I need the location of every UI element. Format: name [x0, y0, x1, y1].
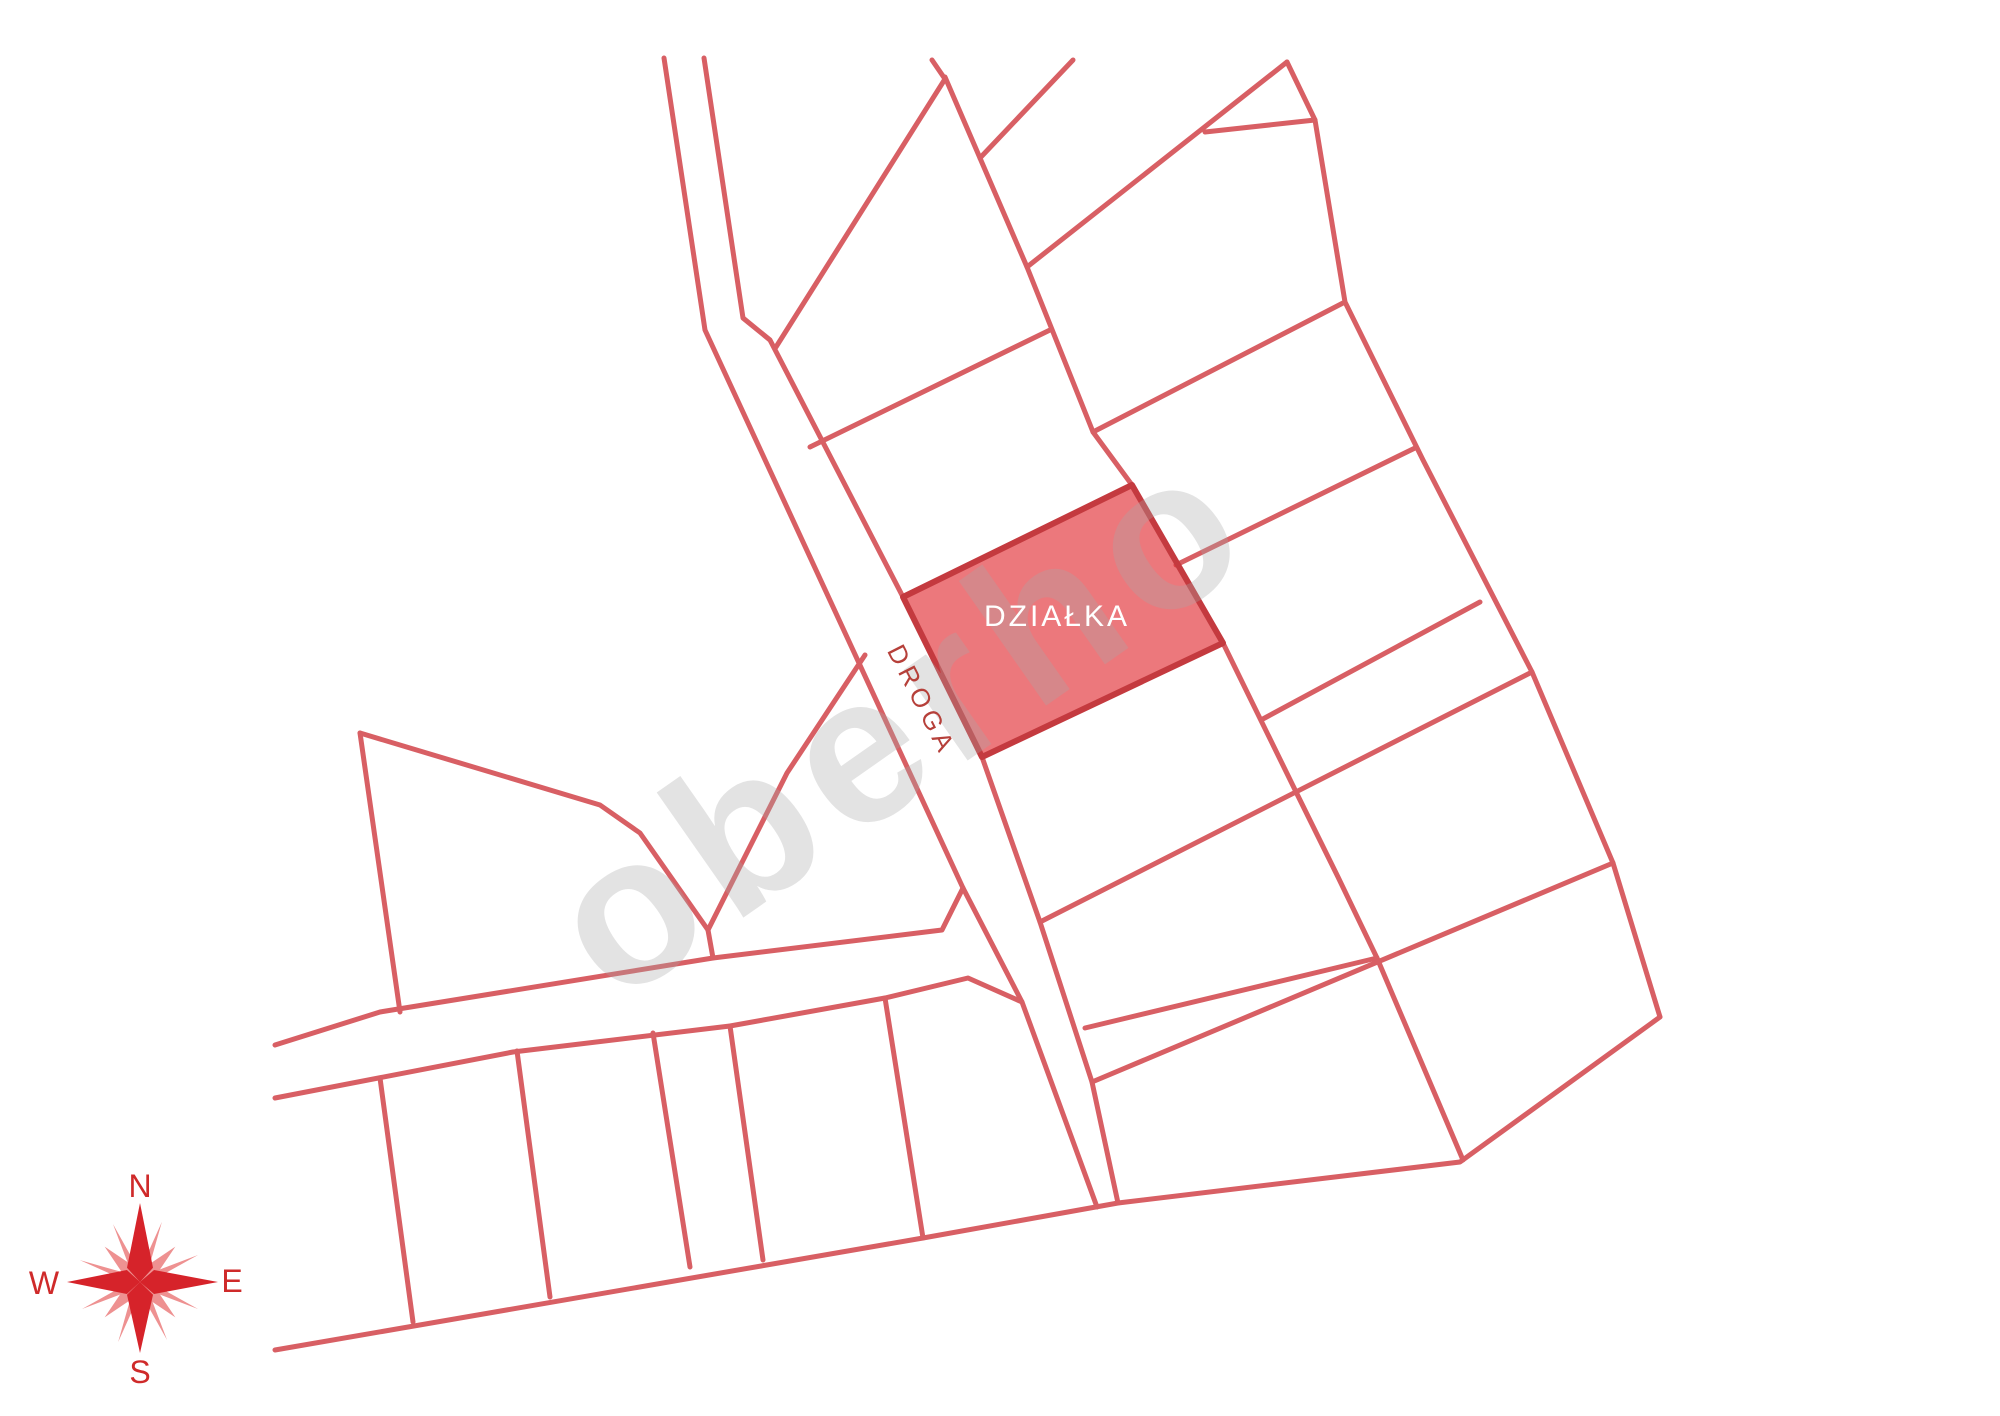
plot-label: DZIAŁKA [984, 602, 1130, 632]
parcel-divider-ne-4 [1261, 602, 1480, 720]
divider-sw-1 [380, 1078, 413, 1322]
compass-south-label: S [129, 1356, 150, 1388]
divider-sw-2 [517, 1051, 550, 1297]
compass-south-point-icon [127, 1282, 153, 1353]
wedge-hypotenuse [776, 60, 945, 347]
parcel-divider-nw [810, 330, 1050, 447]
parcel-divider-ne-1 [1205, 120, 1315, 132]
parcel-divider-e-3 [1092, 863, 1613, 1082]
compass-west-label: W [29, 1267, 59, 1299]
divider-sw-5 [885, 998, 923, 1238]
compass-north-point-icon [127, 1203, 153, 1282]
parcel-divider-e-2 [1085, 958, 1377, 1028]
divider-sw-3 [653, 1033, 690, 1267]
south-boundary [275, 1017, 1660, 1350]
northeast-diagonal [1027, 62, 1287, 267]
compass-rose-icon [40, 1182, 240, 1382]
compass-east-label: E [221, 1265, 242, 1297]
north-stub [980, 60, 1073, 158]
pentagon-west-edge [360, 733, 400, 1012]
cadastral-plan: oberho DZIAŁKA DROGA N E S W [0, 0, 2000, 1416]
compass-east-point-icon [140, 1270, 218, 1294]
east-zigzag-boundary [1287, 62, 1660, 1017]
compass-west-point-icon [67, 1270, 140, 1294]
column-east-of-plot [1223, 643, 1463, 1160]
parcel-divider-ne-2 [1093, 303, 1343, 432]
compass-north-label: N [128, 1170, 151, 1202]
divider-sw-4 [730, 1026, 763, 1260]
